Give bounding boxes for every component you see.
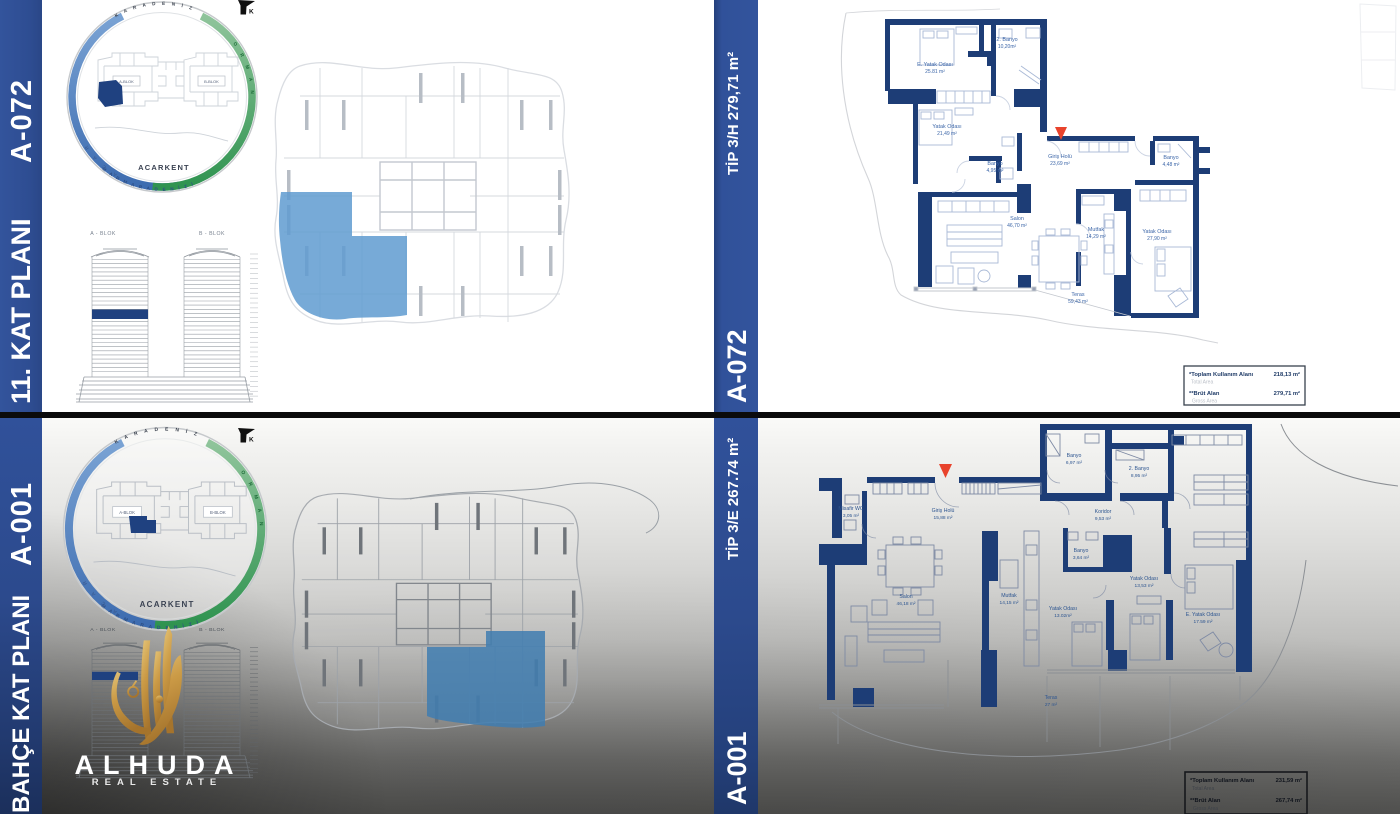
- svg-text:K: K: [249, 437, 254, 444]
- svg-text:*Toplam Kullanım Alanı: *Toplam Kullanım Alanı: [1189, 372, 1253, 378]
- svg-text:A - BLOK: A - BLOK: [90, 627, 116, 633]
- svg-text:A - BLOK: A - BLOK: [90, 231, 116, 237]
- svg-text:46,18 m²: 46,18 m²: [897, 601, 916, 607]
- svg-text:25.81 m²: 25.81 m²: [925, 69, 945, 75]
- svg-text:231,59 m²: 231,59 m²: [1276, 777, 1302, 784]
- svg-text:E. Yatak Odası: E. Yatak Odası: [1186, 612, 1220, 618]
- svg-text:Mutfak: Mutfak: [1088, 227, 1104, 233]
- svg-text:2. Banyo: 2. Banyo: [996, 37, 1017, 43]
- svg-text:Banyo: Banyo: [1067, 453, 1082, 459]
- svg-text:10,20m²: 10,20m²: [998, 44, 1017, 50]
- svg-text:Giriş Holü: Giriş Holü: [932, 508, 955, 514]
- svg-text:46,70 m²: 46,70 m²: [1007, 223, 1027, 229]
- svg-text:3,05 m²: 3,05 m²: [843, 513, 860, 519]
- svg-text:4,48 m²: 4,48 m²: [1163, 162, 1180, 168]
- svg-text:Banyo: Banyo: [1163, 155, 1178, 161]
- svg-text:Gross Area: Gross Area: [1192, 399, 1217, 405]
- svg-text:B-BLOK: B-BLOK: [204, 79, 219, 84]
- svg-text:Yatak Odası: Yatak Odası: [1049, 606, 1077, 612]
- svg-text:Koridor: Koridor: [1095, 509, 1112, 515]
- svg-text:ACARKENT: ACARKENT: [138, 163, 190, 172]
- svg-text:Yatak Odası: Yatak Odası: [932, 124, 961, 130]
- svg-text:17.59 m²: 17.59 m²: [1194, 619, 1213, 625]
- svg-text:21,49 m²: 21,49 m²: [937, 131, 957, 137]
- svg-text:Gross Area: Gross Area: [1193, 806, 1218, 812]
- svg-text:Total Area: Total Area: [1191, 380, 1213, 386]
- svg-text:3,64 m²: 3,64 m²: [1073, 555, 1090, 561]
- svg-text:Misafir WC: Misafir WC: [838, 506, 864, 512]
- svg-text:15,88 m²: 15,88 m²: [934, 515, 953, 521]
- svg-text:267,74 m²: 267,74 m²: [1276, 797, 1302, 804]
- svg-text:14,15 m²: 14,15 m²: [1000, 600, 1019, 606]
- svg-text:4,95 m²: 4,95 m²: [987, 168, 1004, 174]
- svg-text:A-BLOK: A-BLOK: [119, 79, 134, 84]
- svg-text:6,97 m²: 6,97 m²: [1066, 460, 1083, 466]
- svg-text:Banyo: Banyo: [1074, 548, 1089, 554]
- svg-text:Salon: Salon: [1010, 216, 1024, 222]
- svg-text:B - BLOK: B - BLOK: [199, 231, 225, 237]
- svg-text:218,13 m²: 218,13 m²: [1274, 371, 1300, 378]
- svg-text:Yatak Odası: Yatak Odası: [1130, 576, 1158, 582]
- svg-text:Mutfak: Mutfak: [1001, 593, 1017, 599]
- svg-text:59,43 m²: 59,43 m²: [1068, 299, 1088, 305]
- svg-text:Salon: Salon: [899, 594, 912, 600]
- svg-text:Total Area: Total Area: [1192, 786, 1214, 792]
- svg-text:13,53 m²: 13,53 m²: [1135, 583, 1154, 589]
- svg-text:Giriş Holü: Giriş Holü: [1048, 154, 1072, 160]
- svg-text:23,69 m²: 23,69 m²: [1050, 161, 1070, 167]
- svg-text:Yatak Odası: Yatak Odası: [1142, 229, 1171, 235]
- svg-text:9,53 m²: 9,53 m²: [1095, 516, 1112, 522]
- svg-text:E. Yatak Odası: E. Yatak Odası: [917, 62, 953, 68]
- svg-text:279,71 m²: 279,71 m²: [1274, 390, 1300, 397]
- svg-text:Teras: Teras: [1045, 695, 1058, 701]
- svg-text:K: K: [249, 9, 254, 16]
- svg-text:**Brüt Alan: **Brüt Alan: [1190, 798, 1221, 804]
- svg-text:Teras: Teras: [1071, 292, 1084, 298]
- svg-text:13.02m²: 13.02m²: [1054, 613, 1072, 619]
- svg-text:B-BLOK: B-BLOK: [210, 510, 226, 515]
- svg-text:27 m²: 27 m²: [1045, 702, 1058, 708]
- svg-text:Banyo: Banyo: [987, 161, 1002, 167]
- svg-text:A-BLOK: A-BLOK: [119, 510, 135, 515]
- svg-text:27,90 m²: 27,90 m²: [1147, 236, 1167, 242]
- svg-text:2. Banyo: 2. Banyo: [1129, 466, 1150, 472]
- svg-text:*Toplam Kullanım Alanı: *Toplam Kullanım Alanı: [1190, 778, 1254, 784]
- svg-text:14,29 m²: 14,29 m²: [1086, 234, 1106, 240]
- svg-text:ACARKENT: ACARKENT: [140, 600, 195, 609]
- svg-text:B - BLOK: B - BLOK: [199, 627, 225, 633]
- svg-text:8,95 m²: 8,95 m²: [1131, 473, 1148, 479]
- svg-text:**Brüt Alan: **Brüt Alan: [1189, 391, 1220, 397]
